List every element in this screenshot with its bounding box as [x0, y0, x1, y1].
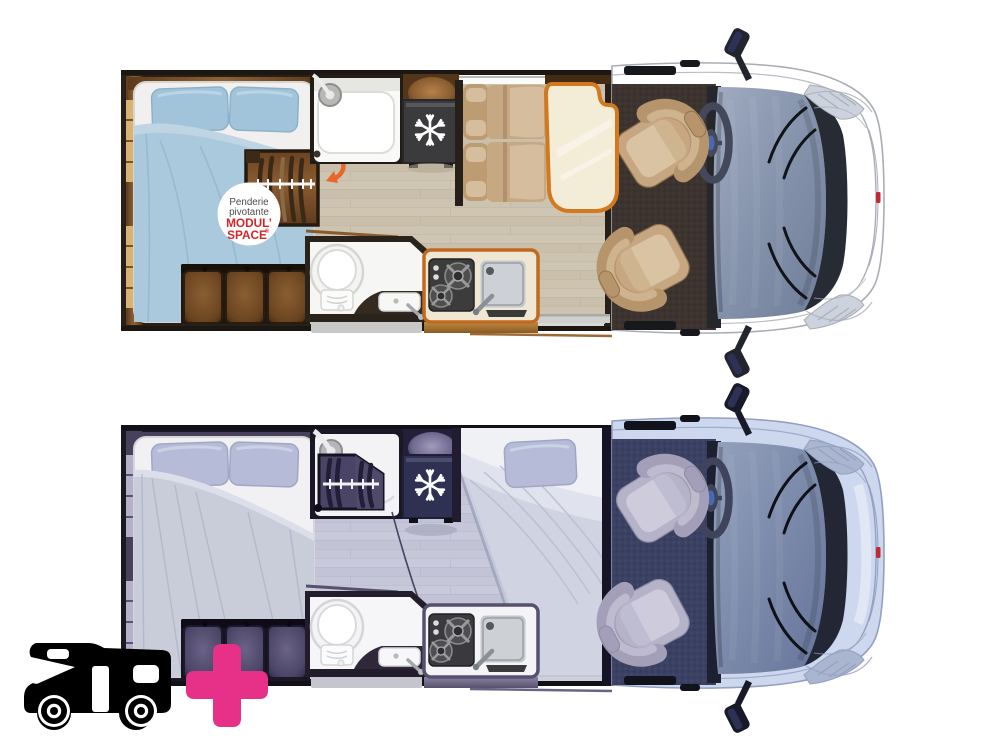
svg-text:SPACE: SPACE	[227, 228, 267, 242]
svg-text:®: ®	[265, 228, 270, 235]
